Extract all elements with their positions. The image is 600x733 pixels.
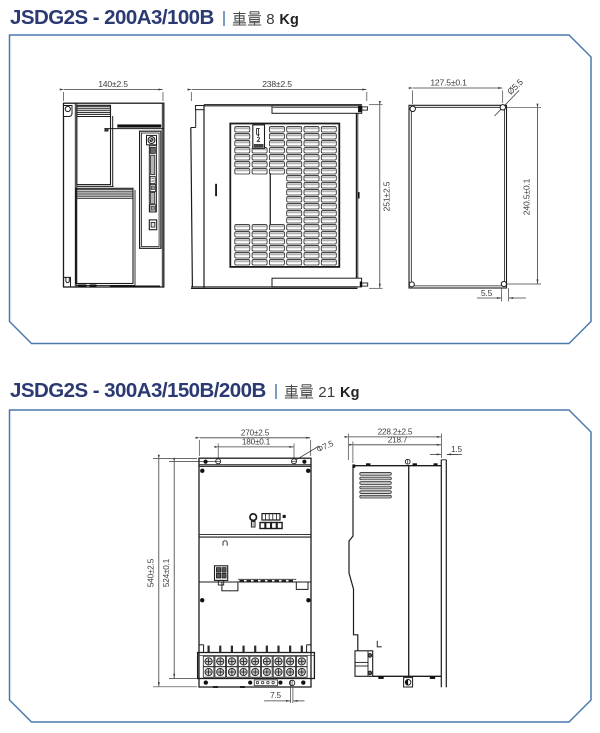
svg-text:251±2.5: 251±2.5: [382, 181, 392, 211]
svg-text:524±0.1: 524±0.1: [162, 558, 171, 587]
svg-text:7.5: 7.5: [270, 691, 281, 700]
svg-text:5.5: 5.5: [481, 288, 493, 298]
svg-text:540±2.5: 540±2.5: [147, 558, 156, 587]
svg-text:238±2.5: 238±2.5: [262, 79, 292, 89]
svg-text:180±0.1: 180±0.1: [242, 438, 271, 447]
svg-text:218.7: 218.7: [388, 436, 408, 445]
svg-text:240.5±0.1: 240.5±0.1: [522, 178, 532, 215]
svg-text:1.5: 1.5: [451, 445, 462, 454]
svg-text:270±2.5: 270±2.5: [241, 428, 270, 437]
svg-text:140±2.5: 140±2.5: [98, 79, 128, 89]
svg-text:127.5±0.1: 127.5±0.1: [430, 78, 467, 88]
